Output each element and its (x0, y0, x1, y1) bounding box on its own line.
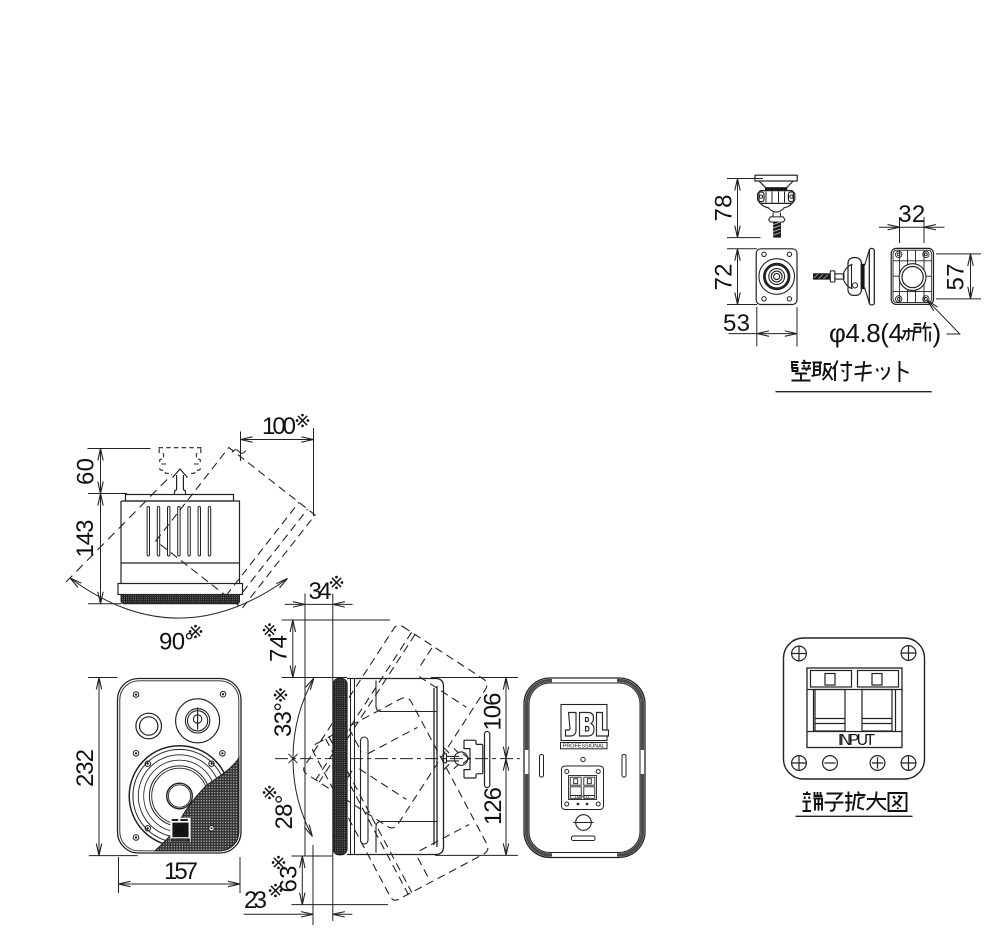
svg-text:232: 232 (72, 749, 99, 787)
svg-text:JBL: JBL (174, 826, 187, 837)
svg-text:78: 78 (710, 195, 737, 222)
svg-text:INPUT: INPUT (838, 732, 876, 749)
svg-text:23: 23 (244, 887, 267, 914)
svg-text:143: 143 (72, 520, 99, 558)
svg-text:34: 34 (309, 578, 332, 605)
svg-text:126: 126 (480, 787, 507, 825)
svg-text:100: 100 (262, 413, 296, 440)
svg-text:28°: 28° (271, 795, 298, 830)
svg-text:72: 72 (710, 264, 737, 291)
svg-text:90°: 90° (159, 629, 194, 656)
svg-text:157: 157 (164, 858, 198, 885)
svg-text:PROFESSIONAL: PROFESSIONAL (563, 744, 605, 750)
svg-text:106: 106 (480, 693, 507, 731)
svg-text:φ4.8(4: φ4.8(4 (829, 318, 903, 348)
svg-text:57: 57 (942, 264, 969, 291)
svg-text:INPUT: INPUT (575, 794, 590, 799)
svg-text:53: 53 (723, 310, 750, 337)
svg-text:74: 74 (266, 635, 293, 662)
svg-text:60: 60 (73, 458, 100, 485)
svg-text:33°: 33° (270, 702, 297, 737)
svg-text:32: 32 (898, 201, 925, 228)
svg-text:): ) (933, 318, 942, 348)
svg-text:63: 63 (276, 866, 303, 893)
